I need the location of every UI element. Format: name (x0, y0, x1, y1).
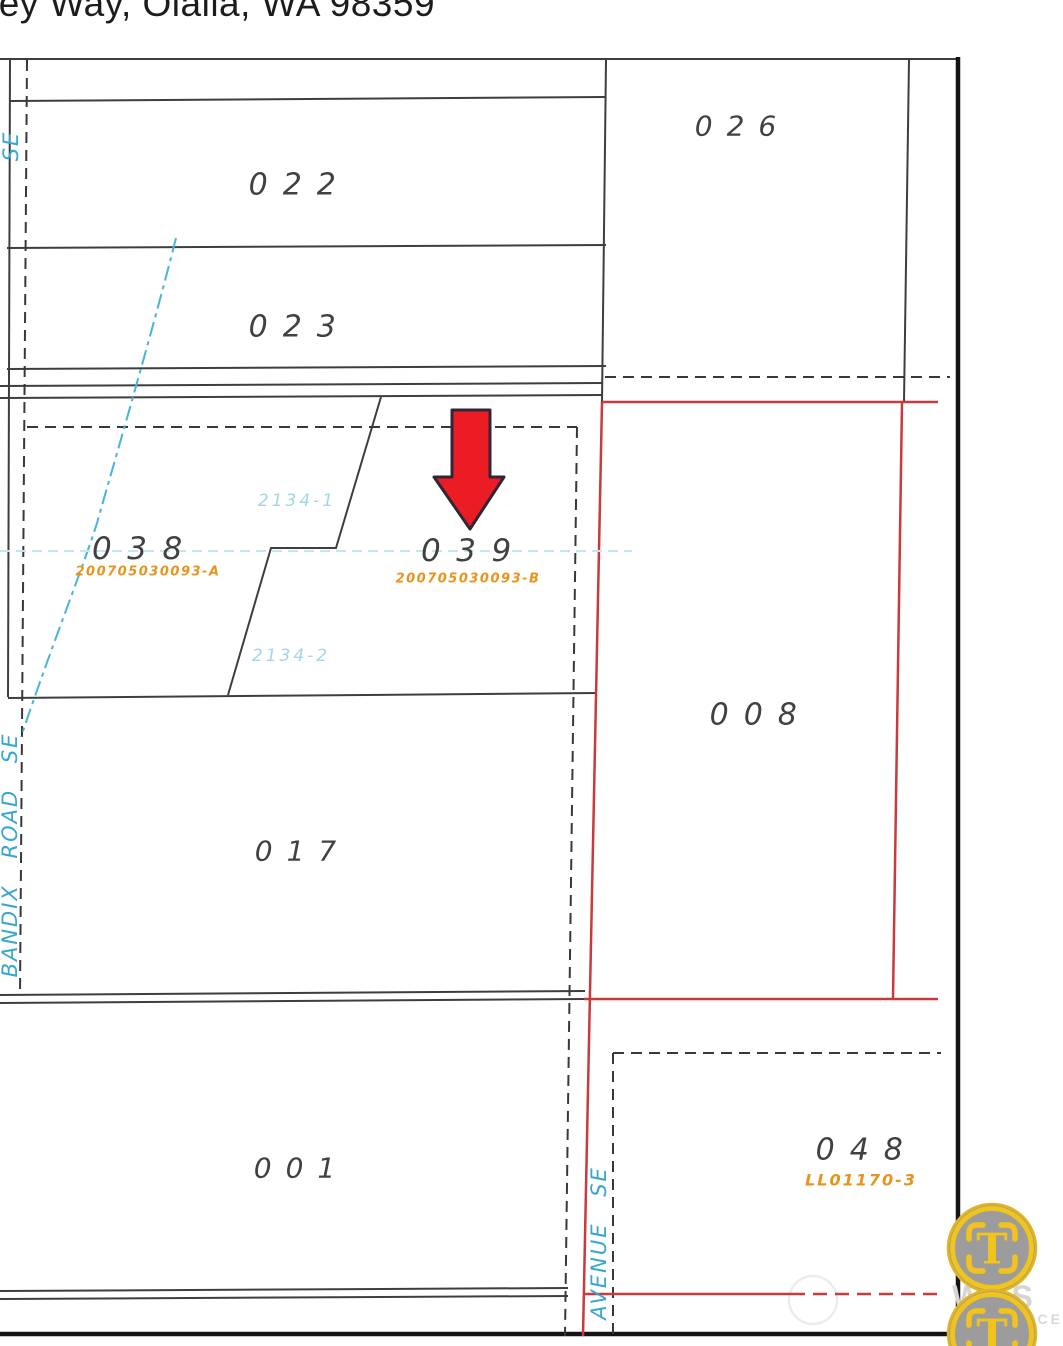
lot-label-048: 048 (808, 1133, 918, 1168)
t-badge-letter: T (976, 1311, 1007, 1346)
stream-label-2134-1: 2134-1 (258, 491, 336, 511)
road-label-se: SE (0, 131, 23, 162)
parcel-id-038: 200705030093-A (75, 565, 220, 580)
lot-label-038: 038 (84, 531, 197, 567)
stream-line (21, 238, 176, 737)
lot-label-017: 017 (248, 835, 350, 868)
faint-watermark-circle (789, 1276, 837, 1324)
lot-label-001: 001 (247, 1152, 349, 1185)
parcel-lines-black (0, 59, 958, 1299)
stream-label-2134-2: 2134-2 (252, 646, 330, 666)
road-label-avenue-se: AVENUE SE (587, 1166, 611, 1320)
subject-boundary-right (565, 427, 577, 1336)
watermark-badge-top: T (948, 1204, 1036, 1292)
lot-label-023: 023 (241, 310, 351, 345)
road-label-bandix-road-se: BANDIX ROAD SE (0, 733, 22, 978)
t-badge-letter: T (976, 1225, 1007, 1274)
lot-label-008: 008 (702, 698, 812, 733)
lot-label-039: 039 (413, 533, 526, 569)
lot-label-026: 026 (688, 110, 790, 143)
parcel-id-039: 200705030093-B (396, 572, 541, 587)
lot-label-022: 022 (241, 168, 351, 203)
red-parcel-lines (583, 402, 938, 1336)
plat-map-page: ley Way, Olalla, WA 98359 (0, 0, 1063, 1346)
parcel-id-048: LL01170-3 (805, 1171, 917, 1190)
